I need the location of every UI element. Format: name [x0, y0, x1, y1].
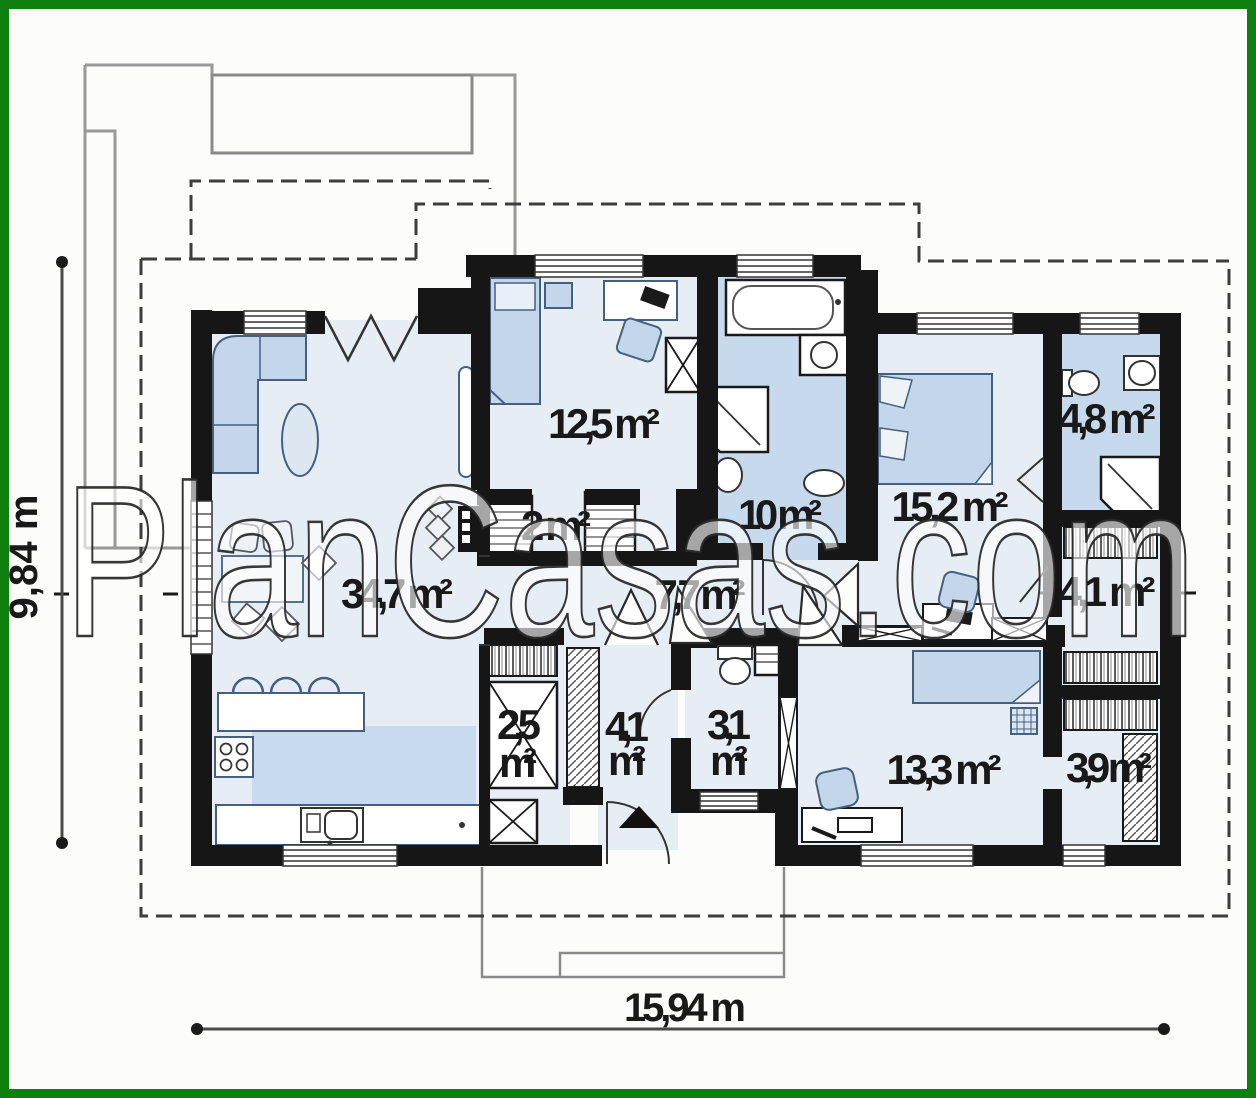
svg-text:m²: m²	[608, 737, 646, 784]
svg-text:PlanCasas.com: PlanCasas.com	[64, 440, 1196, 682]
svg-text:4,8 m²: 4,8 m²	[1059, 395, 1156, 442]
svg-text:m²: m²	[710, 737, 748, 784]
svg-text:13,3 m²: 13,3 m²	[887, 746, 1002, 793]
svg-text:3,9 m²: 3,9 m²	[1066, 744, 1152, 791]
svg-text:15,94 m: 15,94 m	[624, 986, 746, 1030]
svg-text:m²: m²	[499, 739, 537, 786]
